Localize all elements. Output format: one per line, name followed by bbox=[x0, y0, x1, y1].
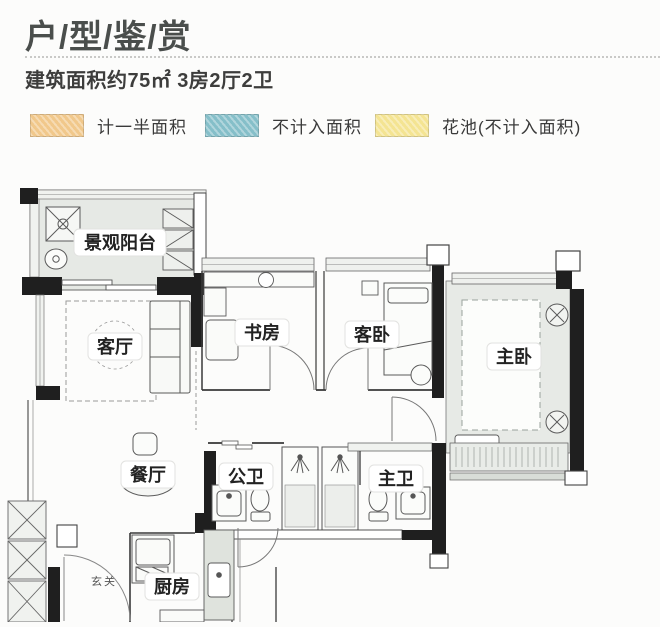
area-subtitle: 建筑面积约75㎡ 3房2厅2卫 bbox=[25, 64, 274, 93]
room-label-balcony: 景观阳台 bbox=[74, 229, 166, 256]
desk-icon bbox=[204, 272, 314, 316]
room-label-study: 书房 bbox=[235, 319, 289, 346]
legend-label: 不计入面积 bbox=[272, 113, 362, 138]
sofa-icon bbox=[150, 301, 190, 393]
door-arc bbox=[326, 348, 368, 390]
wall bbox=[570, 289, 584, 473]
wall bbox=[556, 271, 572, 289]
chair-icon bbox=[411, 365, 431, 385]
wall bbox=[432, 443, 446, 533]
door-arc bbox=[64, 555, 130, 621]
orange-swatch bbox=[30, 114, 84, 137]
sliding-door bbox=[222, 441, 252, 449]
entry-cabinets bbox=[8, 501, 46, 622]
chair-icon bbox=[206, 320, 238, 360]
sink-icon bbox=[208, 563, 230, 597]
room-label-kitchen: 厨房 bbox=[145, 573, 199, 600]
room-label-master-bathroom: 主卫 bbox=[369, 465, 423, 492]
legend: 计一半面积 不计入面积 花池(不计入面积) bbox=[0, 112, 660, 140]
yellow-swatch bbox=[375, 114, 429, 137]
wall bbox=[20, 188, 38, 204]
legend-item-flower-pool: 花池(不计入面积) bbox=[375, 112, 581, 138]
wall bbox=[191, 285, 203, 347]
legend-item-half-area: 计一半面积 bbox=[30, 112, 187, 138]
shower-stalls bbox=[282, 447, 358, 530]
svg-text:主卫: 主卫 bbox=[378, 468, 414, 489]
door-arc bbox=[392, 397, 436, 441]
legend-item-not-counted: 不计入面积 bbox=[205, 112, 362, 138]
room-label-living: 客厅 bbox=[88, 333, 142, 360]
kitchen bbox=[130, 513, 278, 622]
room-label-entry: 玄关 bbox=[91, 574, 117, 588]
balcony-cabinets bbox=[163, 209, 193, 270]
room-label-dining: 餐厅 bbox=[121, 461, 175, 488]
floor-plan-drawing: 玄关 景观阳台 客厅 书房 客卧 主卧 餐厅 公卫 bbox=[0, 185, 660, 622]
svg-text:客厅: 客厅 bbox=[97, 336, 133, 357]
svg-text:客卧: 客卧 bbox=[354, 324, 390, 345]
svg-text:书房: 书房 bbox=[244, 322, 280, 343]
wall bbox=[22, 277, 62, 295]
nightstand bbox=[362, 281, 378, 295]
sink-icon bbox=[45, 249, 67, 269]
svg-text:餐厅: 餐厅 bbox=[129, 464, 166, 485]
svg-text:公卫: 公卫 bbox=[228, 467, 264, 487]
teal-swatch bbox=[205, 114, 259, 137]
svg-text:厨房: 厨房 bbox=[154, 576, 190, 597]
legend-label: 计一半面积 bbox=[97, 113, 187, 138]
toilet-icon bbox=[251, 487, 270, 521]
entry: 玄关 bbox=[8, 501, 130, 622]
wall bbox=[48, 567, 60, 622]
legend-label: 花池(不计入面积) bbox=[442, 113, 581, 138]
dotted-divider bbox=[25, 56, 660, 58]
living-room bbox=[28, 285, 203, 527]
bath-bottom-wall bbox=[208, 530, 448, 568]
wardrobe bbox=[450, 443, 587, 485]
floor-plan: 玄关 景观阳台 客厅 书房 客卧 主卧 餐厅 公卫 bbox=[0, 185, 660, 622]
wall bbox=[432, 255, 444, 398]
svg-text:主卧: 主卧 bbox=[496, 346, 532, 367]
room-label-public-bathroom: 公卫 bbox=[219, 463, 273, 490]
room-label-guest-bedroom: 客卧 bbox=[345, 321, 399, 348]
door-arc bbox=[270, 345, 314, 390]
room-label-master-bedroom: 主卧 bbox=[487, 343, 541, 370]
wall bbox=[36, 386, 60, 400]
page-title: 户/型/鉴/赏 bbox=[25, 10, 192, 58]
stool bbox=[133, 433, 157, 455]
svg-text:景观阳台: 景观阳台 bbox=[84, 232, 156, 253]
